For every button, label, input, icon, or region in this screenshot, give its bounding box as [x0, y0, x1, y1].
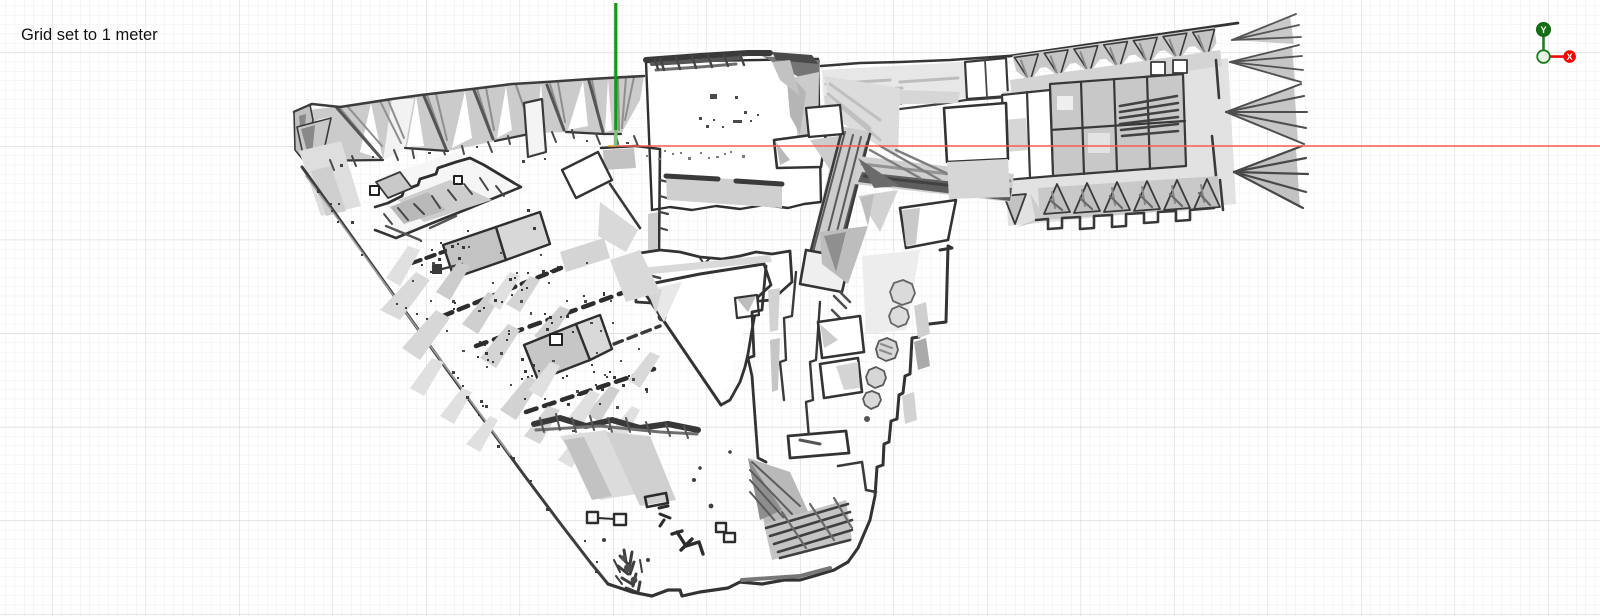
- svg-text:X: X: [1567, 52, 1573, 62]
- svg-text:Grid set to 1 meter: Grid set to 1 meter: [21, 26, 158, 44]
- svg-text:Y: Y: [1540, 25, 1546, 35]
